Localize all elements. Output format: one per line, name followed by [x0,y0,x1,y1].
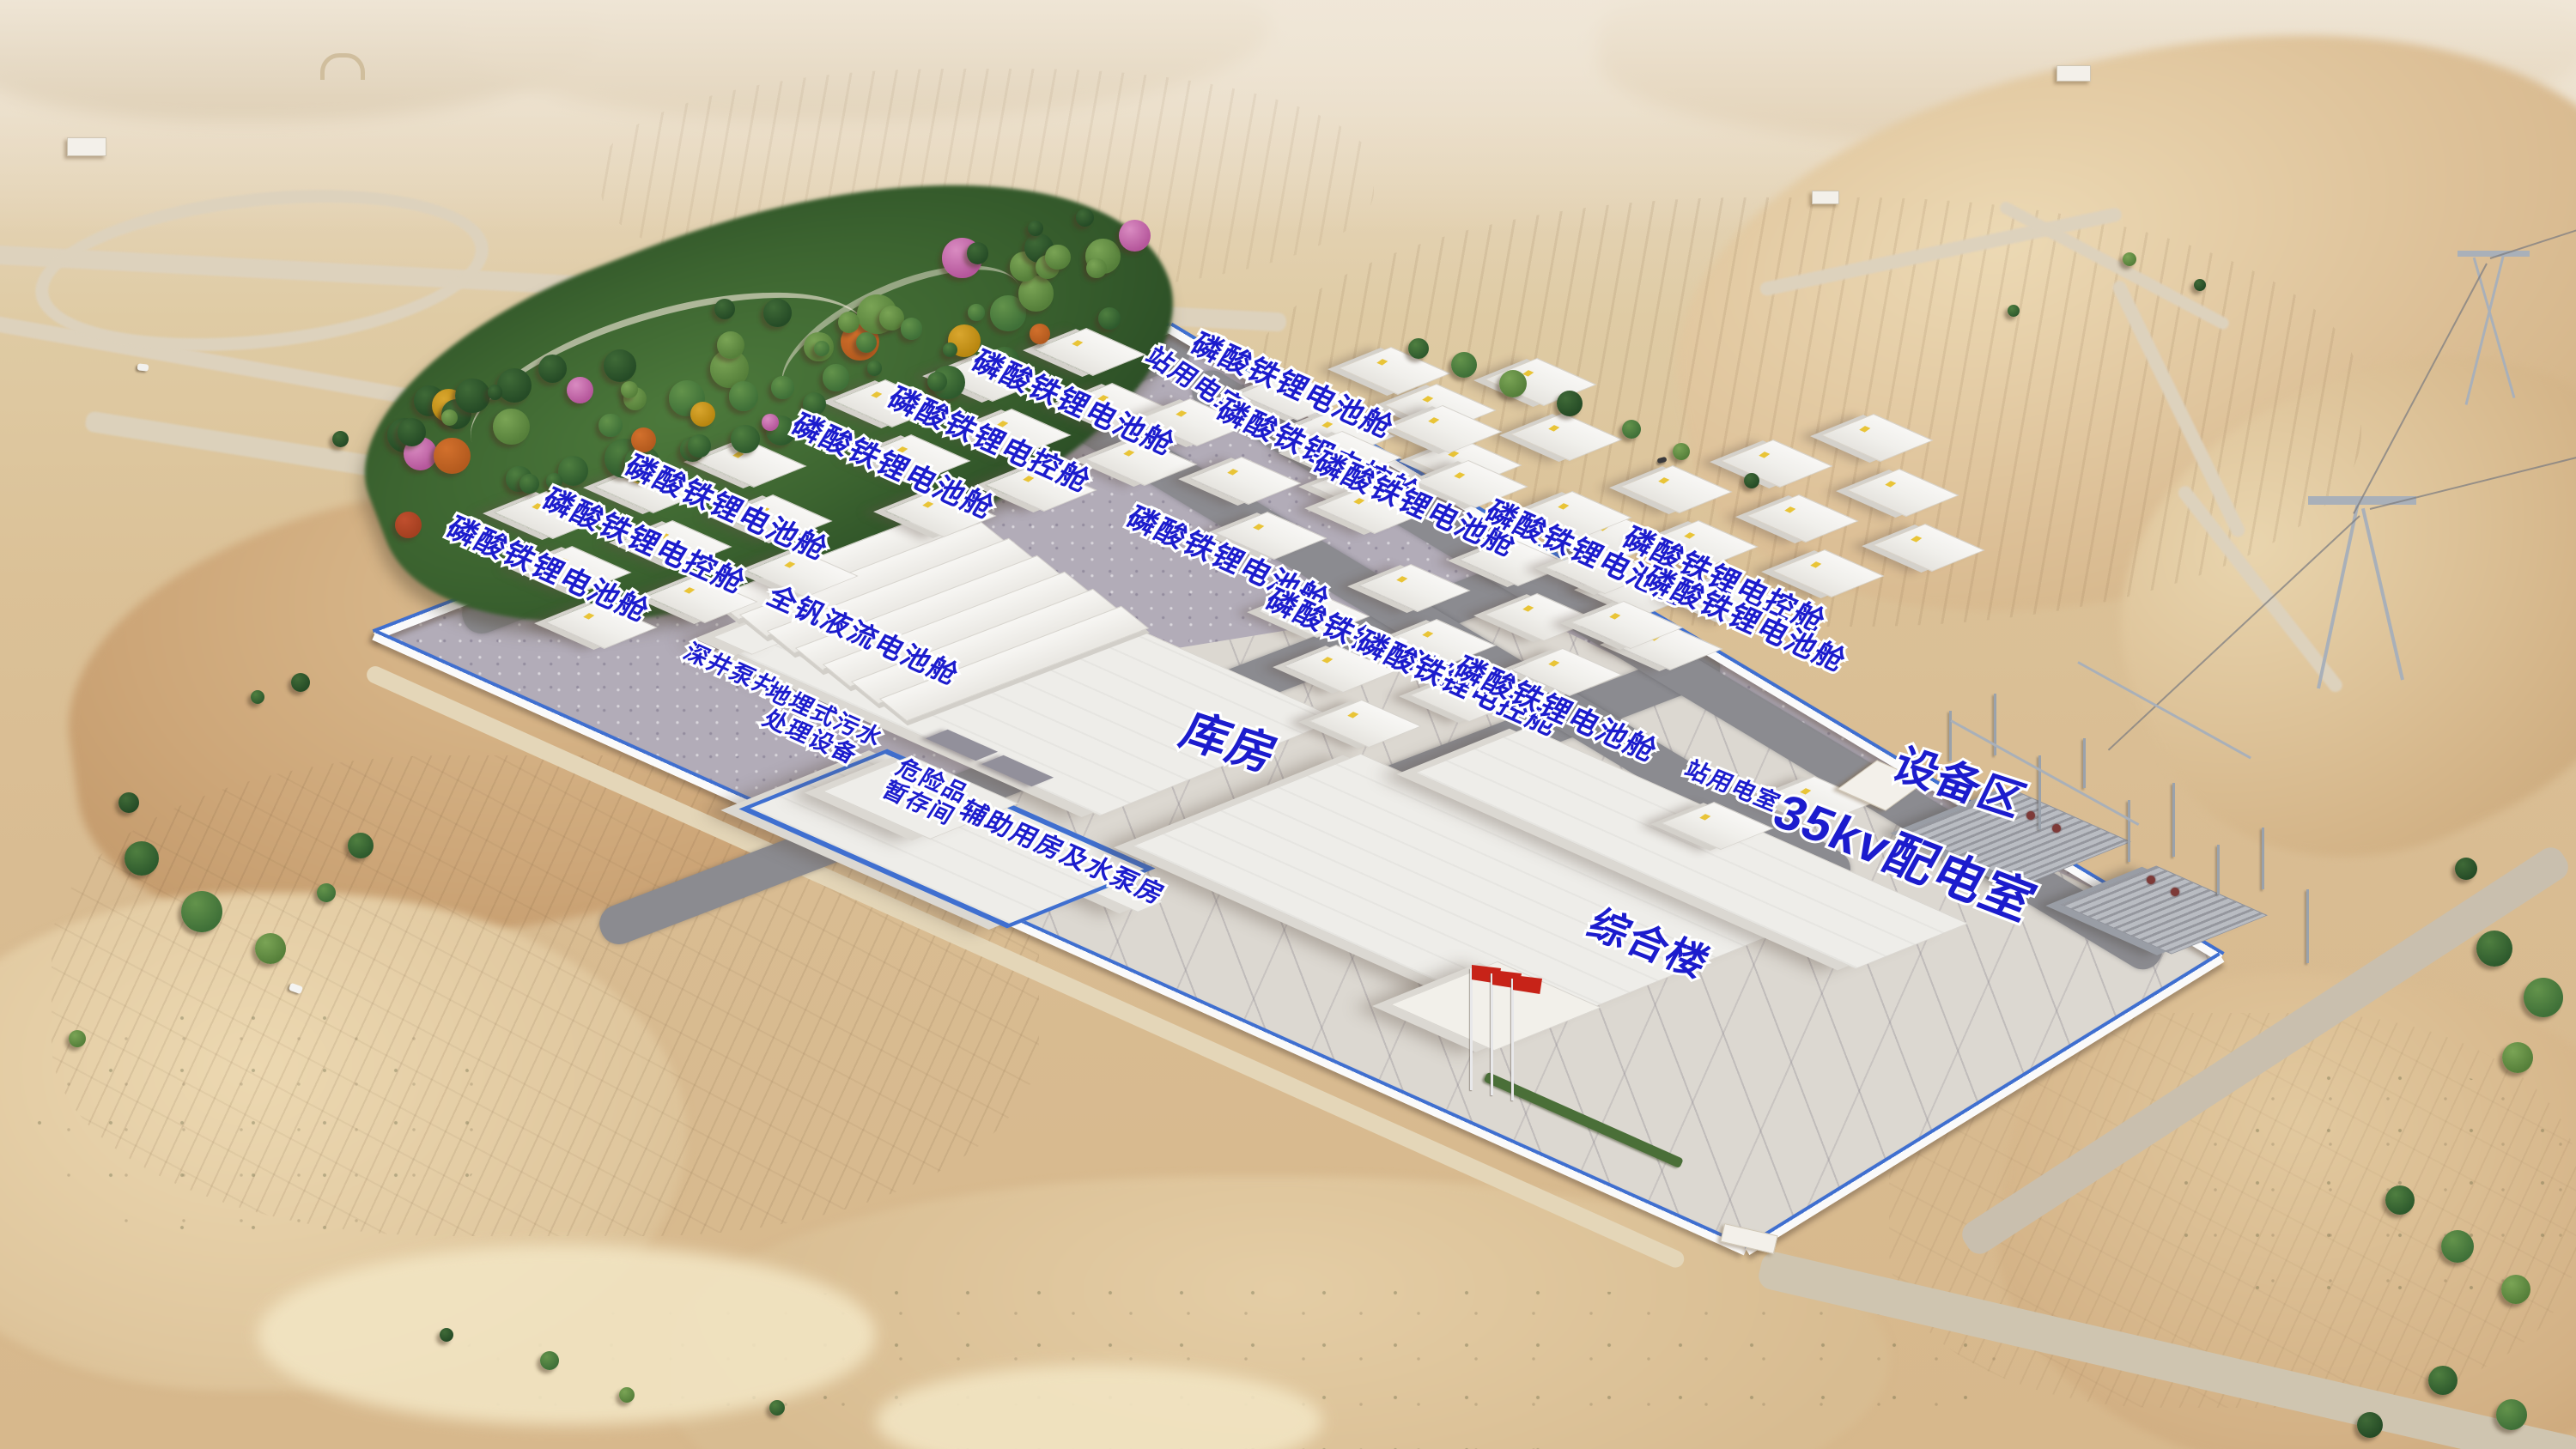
tree [967,242,989,264]
tree [2455,858,2477,880]
tree [717,331,744,359]
tree [729,381,759,411]
aerial-site-rendering: 站用电室磷酸铁锂电池舱磷酸铁锂电控舱磷酸铁锂电池舱磷酸铁锂电池舱磷酸铁锂电控舱磷… [0,0,2576,1449]
tree [291,673,310,692]
tree [2501,1275,2530,1304]
tree [714,299,735,319]
tree [398,418,426,446]
tree [1408,338,1429,359]
tree [1030,324,1050,344]
tree [497,368,532,403]
tree [867,361,882,375]
white-van [137,363,149,371]
tree [1119,220,1151,252]
tree [1499,370,1527,397]
tree [1045,245,1071,270]
gantry-pole [2038,755,2041,829]
gantry-pole [2217,845,2220,894]
tree [1744,473,1759,488]
tree [901,318,922,339]
transformer-bushing [2147,876,2155,884]
tree [690,402,715,427]
tree [968,304,985,321]
tree [1028,221,1043,236]
gantry-pole [2172,783,2175,857]
gantry-pole [2083,738,2086,788]
tree [125,841,159,876]
tree [1086,258,1106,278]
tree [2385,1185,2415,1215]
tree [1673,443,1690,460]
gantry-pole [2306,889,2309,963]
transformer-bushing [2026,811,2035,820]
tree [540,1351,559,1370]
tree [332,431,349,448]
flag-pole [1491,973,1493,1095]
tree [2008,305,2020,317]
tree [255,933,286,964]
shrub-field [34,1013,481,1236]
tree [440,1328,453,1342]
tree [771,376,794,399]
flag-pole [1470,968,1473,1090]
tree [1451,352,1477,378]
gantry-pole [2128,800,2130,862]
tree [118,792,139,813]
distant-building [1812,191,1839,204]
tree [1622,420,1641,439]
tree [2357,1412,2383,1438]
distant-facility [67,137,106,156]
tree [317,883,336,902]
tree [567,377,593,403]
tree [927,372,947,391]
tree [2502,1042,2533,1073]
tree [619,1387,635,1403]
tree [604,349,636,382]
distant-building [2057,65,2091,82]
tree [348,833,374,858]
tree [2428,1366,2458,1395]
transformer-bushing [2052,824,2061,833]
tree [763,299,791,326]
tree [2194,279,2206,291]
tree [2524,978,2563,1017]
tree [538,355,567,383]
tree [2496,1399,2527,1430]
transformer-bushing [2171,888,2179,896]
tree [731,425,760,454]
tree [2476,931,2512,967]
light-sand-patch [258,1245,876,1425]
tree [181,891,222,932]
distant-arch-structure [320,53,365,80]
tree [251,690,264,704]
tree [2123,252,2136,266]
tree [598,414,623,438]
tree [69,1030,86,1047]
tree [441,409,458,426]
tree [838,312,860,333]
tree [455,379,490,414]
tree [519,474,539,494]
tree [1076,209,1094,227]
tree [1557,391,1583,416]
tree [688,434,711,458]
tree [488,385,502,399]
tree [2441,1230,2474,1263]
tree [769,1400,785,1416]
gantry-pole [2262,828,2264,889]
tree [621,381,638,398]
tree [823,364,850,391]
tree [493,409,529,445]
tree [434,438,471,475]
gantry-pole [1949,711,1952,761]
tree [814,341,829,356]
tree [1098,307,1121,330]
flag-pole [1511,979,1514,1100]
tree [395,512,422,538]
